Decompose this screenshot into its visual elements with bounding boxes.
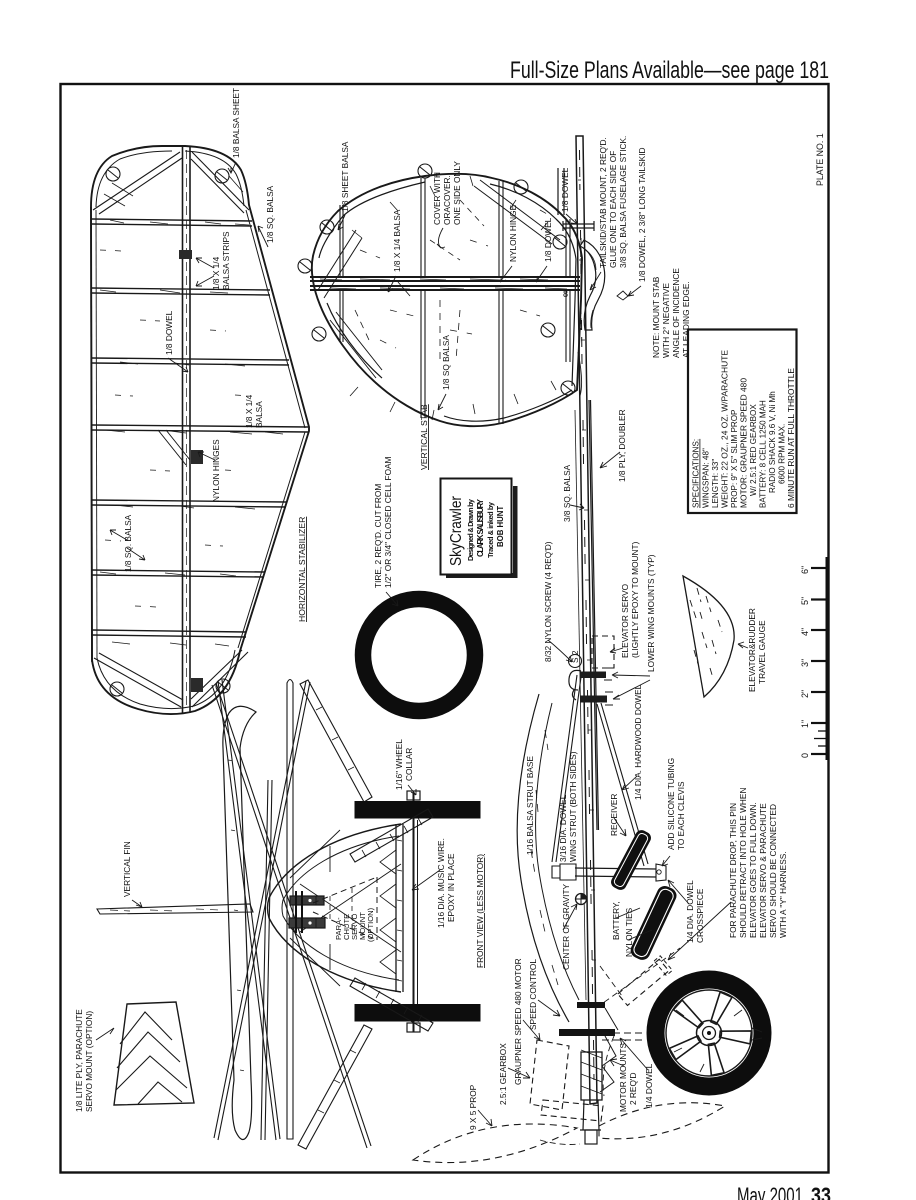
svg-text:9 X 5 PROP: 9 X 5 PROP [468, 1084, 478, 1130]
svg-text:TRAVEL GAUGE: TRAVEL GAUGE [757, 620, 767, 684]
svg-text:3/16 DIA. DOWEL: 3/16 DIA. DOWEL [558, 794, 568, 862]
svg-text:1/8 SQ. BALSA: 1/8 SQ. BALSA [123, 514, 133, 572]
svg-text:BOB HUNT: BOB HUNT [496, 506, 505, 547]
svg-text:1/8 DOWEL, 2 3/8" LONG TAILSKI: 1/8 DOWEL, 2 3/8" LONG TAILSKID [637, 147, 647, 282]
svg-text:8: 8 [563, 289, 568, 299]
svg-text:Full-Size Plans Available—see: Full-Size Plans Available—see page 181 [510, 57, 829, 84]
svg-text:1/8 X 1/4: 1/8 X 1/4 [211, 256, 221, 290]
svg-text:WEIGHT: 22 OZ., 24 OZ. W/PARAC: WEIGHT: 22 OZ., 24 OZ. W/PARACHUTE [721, 349, 730, 508]
svg-text:NYLON HINGE: NYLON HINGE [508, 204, 518, 262]
svg-text:GLUE ONE TO EACH SIDE OF: GLUE ONE TO EACH SIDE OF [608, 151, 618, 268]
svg-text:WITH 2° NEGATIVE: WITH 2° NEGATIVE [661, 282, 671, 358]
svg-text:BATTERY,: BATTERY, [611, 901, 621, 940]
svg-text:ORACOVER.: ORACOVER. [442, 175, 452, 225]
svg-text:NYLON TIES: NYLON TIES [624, 907, 634, 957]
svg-text:1/8 SQ BALSA: 1/8 SQ BALSA [441, 335, 451, 390]
svg-text:4": 4" [800, 628, 810, 636]
svg-text:1/4 DOWEL: 1/4 DOWEL [644, 1063, 654, 1108]
svg-text:W/ 2.5:1 RED GEARBOX: W/ 2.5:1 RED GEARBOX [749, 404, 758, 496]
svg-text:BATTERY: 8 CELL 1250 MAH: BATTERY: 8 CELL 1250 MAH [759, 400, 768, 508]
svg-text:6600 RPM MAX.: 6600 RPM MAX. [778, 424, 787, 484]
svg-text:WING STRUT (BOTH SIDES): WING STRUT (BOTH SIDES) [568, 751, 578, 862]
svg-text:0: 0 [800, 753, 810, 758]
svg-text:3/8 SQ. BALSA FUSELAGE STICK.: 3/8 SQ. BALSA FUSELAGE STICK. [618, 136, 628, 268]
svg-text:6 MINUTE RUN AT FULL THROTTLE: 6 MINUTE RUN AT FULL THROTTLE [787, 367, 796, 508]
svg-text:CLARK SALISBURY: CLARK SALISBURY [476, 498, 485, 557]
svg-text:8/32 NYLON SCREW (4 REQ'D): 8/32 NYLON SCREW (4 REQ'D) [543, 541, 553, 662]
svg-text:ELEVATOR&RUDDER: ELEVATOR&RUDDER [747, 608, 757, 692]
svg-text:2 REQ'D: 2 REQ'D [628, 1073, 638, 1105]
svg-text:1/4 DIA. HARDWOOD DOWEL: 1/4 DIA. HARDWOOD DOWEL [633, 684, 643, 800]
svg-text:FRONT VIEW (LESS MOTOR): FRONT VIEW (LESS MOTOR) [475, 854, 485, 968]
svg-text:PROP: 9" X 5" SLIM PROP: PROP: 9" X 5" SLIM PROP [730, 410, 739, 508]
svg-text:(OPTION): (OPTION) [366, 907, 375, 942]
svg-text:NYLON HINGES: NYLON HINGES [211, 439, 221, 502]
svg-text:LOWER WING MOUNTS (TYP): LOWER WING MOUNTS (TYP) [646, 554, 656, 672]
svg-text:1/16 BALSA STRUT BASE: 1/16 BALSA STRUT BASE [525, 756, 535, 855]
svg-text:SPEED CONTROL: SPEED CONTROL [528, 959, 538, 1030]
svg-text:ELEVATOR GOES TO FULL DOWN.: ELEVATOR GOES TO FULL DOWN. [748, 802, 758, 938]
svg-text:COLLAR: COLLAR [404, 748, 414, 781]
svg-text:33: 33 [811, 1183, 831, 1200]
svg-text:COVER WITH: COVER WITH [432, 172, 442, 225]
svg-text:May 2001: May 2001 [737, 1183, 803, 1200]
svg-text:1/8 DOWEL: 1/8 DOWEL [543, 217, 553, 262]
svg-text:ANGLE OF INCIDENCE: ANGLE OF INCIDENCE [671, 268, 681, 358]
svg-text:CENTER OF GRAVITY: CENTER OF GRAVITY [561, 883, 571, 970]
svg-text:SERVO SHOULD BE CONNECTED: SERVO SHOULD BE CONNECTED [768, 804, 778, 938]
svg-text:Designed & Drawn by: Designed & Drawn by [466, 498, 475, 561]
svg-text:MOTOR MOUNTS: MOTOR MOUNTS [618, 1043, 628, 1112]
svg-text:1/16" WHEEL: 1/16" WHEEL [394, 739, 404, 790]
svg-text:LENGTH: 33": LENGTH: 33" [711, 459, 720, 508]
svg-text:VERTICAL STAB: VERTICAL STAB [419, 404, 429, 470]
svg-text:HORIZONTAL STABILIZER: HORIZONTAL STABILIZER [297, 517, 307, 622]
svg-text:2.5:1 GEARBOX: 2.5:1 GEARBOX [498, 1043, 508, 1105]
svg-text:NOTE: MOUNT STAB: NOTE: MOUNT STAB [651, 276, 661, 358]
svg-text:2": 2" [800, 690, 810, 698]
svg-text:1/8 DOWEL: 1/8 DOWEL [164, 310, 174, 355]
svg-text:1/8 DOWEL: 1/8 DOWEL [560, 167, 570, 212]
svg-text:TO EACH CLEVIS: TO EACH CLEVIS [676, 781, 686, 850]
svg-text:VERTICAL FIN: VERTICAL FIN [122, 841, 132, 897]
svg-text:1/8 PLY, DOUBLER: 1/8 PLY, DOUBLER [617, 409, 627, 482]
svg-text:1/8 SQ. BALSA: 1/8 SQ. BALSA [265, 185, 275, 243]
svg-text:BALSA STRIPS: BALSA STRIPS [221, 231, 231, 290]
svg-text:SERVO MOUNT (OPTION): SERVO MOUNT (OPTION) [84, 1011, 94, 1112]
svg-text:ONE SIDE ONLY: ONE SIDE ONLY [452, 161, 462, 225]
svg-text:1/8 X 1/4 BALSA: 1/8 X 1/4 BALSA [392, 209, 402, 272]
svg-text:RADIO SHACK 9.6 V, Ni Mh: RADIO SHACK 9.6 V, Ni Mh [768, 391, 777, 493]
svg-text:CROSSPIECE: CROSSPIECE [695, 888, 705, 943]
svg-text:ADD SILICONE TUBING: ADD SILICONE TUBING [666, 758, 676, 850]
svg-text:TIRE, 2 REQ'D. CUT FROM: TIRE, 2 REQ'D. CUT FROM [373, 484, 383, 588]
svg-text:ELEVATOR SERVO: ELEVATOR SERVO [620, 583, 630, 658]
svg-text:1/8 BALSA SHEET: 1/8 BALSA SHEET [231, 88, 241, 158]
svg-text:RECEIVER: RECEIVER [609, 794, 619, 836]
svg-text:WINGSPAN: 48": WINGSPAN: 48" [702, 448, 711, 508]
svg-text:EPOXY IN PLACE: EPOXY IN PLACE [446, 853, 456, 922]
svg-text:PLATE NO. 1: PLATE NO. 1 [815, 133, 825, 186]
svg-text:Traced & inked by: Traced & inked by [486, 501, 495, 558]
svg-text:TAILSKID/STAB MOUNT, 2 REQ'D.: TAILSKID/STAB MOUNT, 2 REQ'D. [598, 137, 608, 268]
svg-text:WITH A "Y" HARNESS.: WITH A "Y" HARNESS. [778, 851, 788, 938]
svg-text:1": 1" [800, 720, 810, 728]
svg-text:1/2" OR 3/4" CLOSED CELL FOAM: 1/2" OR 3/4" CLOSED CELL FOAM [383, 456, 393, 588]
svg-text:1/8 X 1/4: 1/8 X 1/4 [244, 394, 254, 428]
svg-text:ELEVATOR SERVO & PARACHUTE: ELEVATOR SERVO & PARACHUTE [758, 803, 768, 938]
svg-text:1/8 SHEET BALSA: 1/8 SHEET BALSA [340, 141, 350, 212]
svg-text:(LIGHTLY EPOXY TO MOUNT): (LIGHTLY EPOXY TO MOUNT) [630, 541, 640, 658]
svg-text:SPECIFICATIONS:: SPECIFICATIONS: [692, 439, 701, 508]
svg-text:MOTOR: GRAUPNER SPEED 480: MOTOR: GRAUPNER SPEED 480 [740, 377, 749, 508]
svg-text:1/16 DIA. MUSIC WIRE.: 1/16 DIA. MUSIC WIRE. [436, 838, 446, 928]
svg-text:5": 5" [800, 597, 810, 605]
svg-text:1/4 DIA. DOWEL: 1/4 DIA. DOWEL [685, 880, 695, 943]
svg-text:SHOULD RETRACT INTO HOLE WHEN: SHOULD RETRACT INTO HOLE WHEN [738, 788, 748, 938]
svg-text:3": 3" [800, 659, 810, 667]
svg-text:3/8 SQ. BALSA: 3/8 SQ. BALSA [562, 464, 572, 522]
svg-text:SkyCrawler: SkyCrawler [448, 495, 465, 566]
svg-text:BALSA: BALSA [254, 401, 264, 428]
svg-text:GRAUPNER SPEED 480 MOTOR: GRAUPNER SPEED 480 MOTOR [513, 958, 523, 1085]
svg-text:1/8 LITE PLY, PARACHUTE: 1/8 LITE PLY, PARACHUTE [74, 1009, 84, 1112]
svg-text:6": 6" [800, 566, 810, 574]
svg-text:FOR PARACHUTE DROP, THIS PIN: FOR PARACHUTE DROP, THIS PIN [728, 803, 738, 938]
